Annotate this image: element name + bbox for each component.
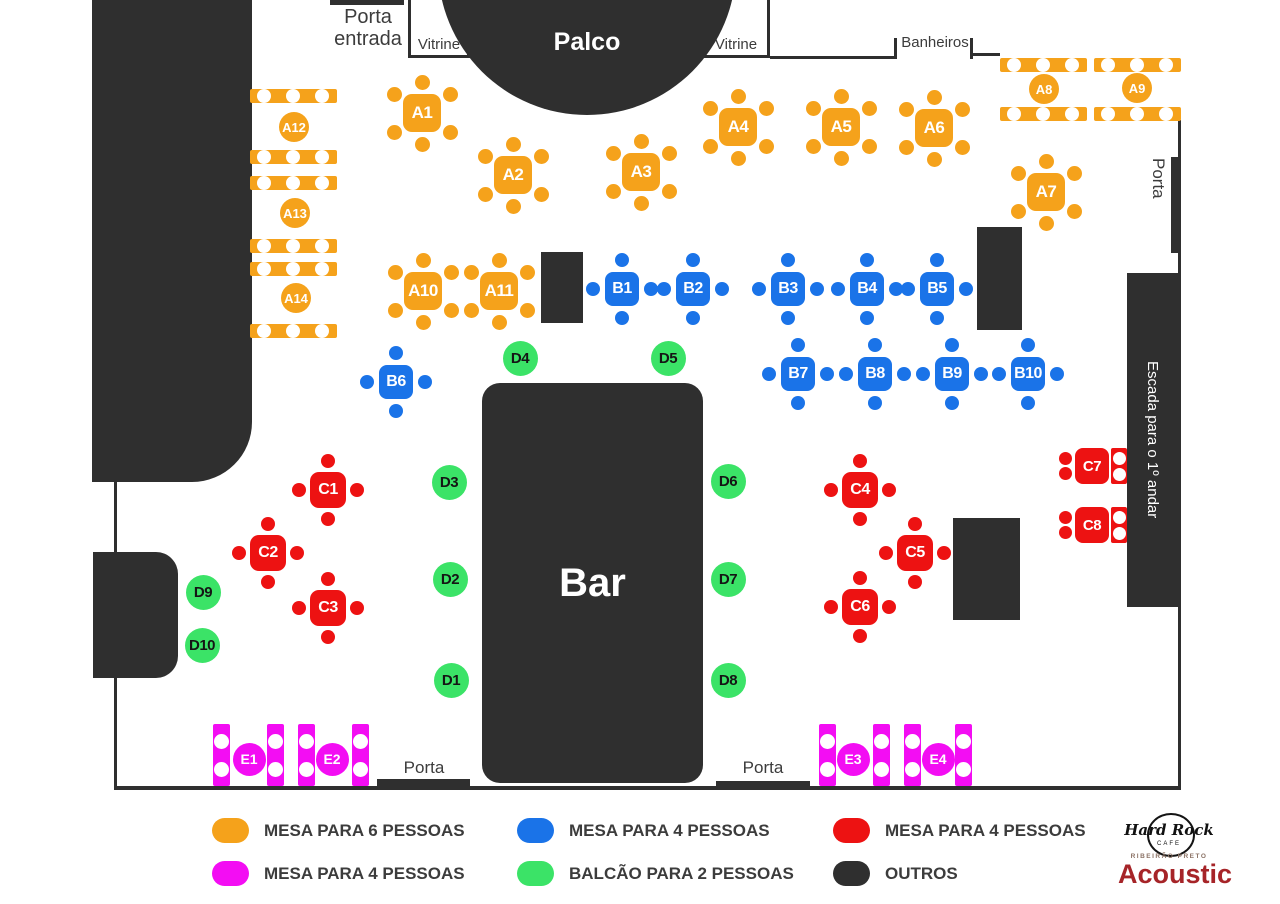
seat-dot — [762, 367, 776, 381]
seat-dot — [321, 512, 335, 526]
seat-dot — [901, 282, 915, 296]
seat-dot — [444, 303, 459, 318]
seat-dot — [360, 375, 374, 389]
seat-dot — [937, 546, 951, 560]
table-top: A11 — [480, 272, 518, 310]
seat-dot — [834, 151, 849, 166]
seat-dot — [268, 734, 283, 749]
seat-dot — [492, 315, 507, 330]
seat-dot — [644, 282, 658, 296]
seat-dot — [703, 139, 718, 154]
seat-dot — [820, 762, 835, 777]
seat-dot — [686, 311, 700, 325]
seat-dot — [321, 454, 335, 468]
seat-dot — [315, 262, 329, 276]
table-top: B4 — [850, 272, 884, 306]
seat-dot — [927, 90, 942, 105]
seat-dot — [860, 311, 874, 325]
seat-dot — [834, 89, 849, 104]
seat-dot — [520, 303, 535, 318]
counter-D5[interactable]: D5 — [651, 341, 686, 376]
seat-dot — [286, 239, 300, 253]
seat-dot — [1101, 58, 1115, 72]
wall-bottom — [114, 786, 1181, 790]
seat-dot — [905, 762, 920, 777]
seat-dot — [781, 253, 795, 267]
seat-dot — [824, 600, 838, 614]
bench — [1111, 507, 1127, 543]
seat-dot — [520, 265, 535, 280]
counter-D1[interactable]: D1 — [434, 663, 469, 698]
table-top: A2 — [494, 156, 532, 194]
bar-label: Bar — [559, 561, 626, 606]
seat-dot — [791, 396, 805, 410]
vitrine-right-label: Vitrine — [715, 36, 757, 53]
seat-dot — [860, 253, 874, 267]
seat-dot — [992, 367, 1006, 381]
bar-counter: Bar — [482, 383, 703, 783]
wall-top-left-block — [92, 0, 252, 482]
legend-swatch-magenta — [212, 861, 249, 886]
seat-dot — [1159, 107, 1173, 121]
seat-dot — [899, 140, 914, 155]
seat-dot — [853, 454, 867, 468]
seat-dot — [418, 375, 432, 389]
table-top: C8 — [1075, 507, 1109, 543]
door-bottom-right — [716, 781, 810, 788]
seat-dot — [257, 239, 271, 253]
seat-dot — [868, 396, 882, 410]
seat-dot — [945, 338, 959, 352]
table-label: A13 — [280, 198, 310, 228]
seat-dot — [315, 89, 329, 103]
seat-dot — [974, 367, 988, 381]
table-top: C6 — [842, 589, 878, 625]
bench — [267, 724, 284, 786]
wall-line-banheiros — [770, 56, 897, 59]
seat-dot — [752, 282, 766, 296]
legend-swatch-blue — [517, 818, 554, 843]
table-label: E4 — [922, 743, 955, 776]
bench — [819, 724, 836, 786]
table-label: E1 — [233, 743, 266, 776]
seat-dot — [1036, 58, 1050, 72]
seat-dot — [1011, 204, 1026, 219]
seat-dot — [315, 239, 329, 253]
hardrock-logo-cafe: CAFE — [1152, 841, 1186, 847]
seat-dot — [908, 517, 922, 531]
bench — [250, 324, 337, 338]
seat-dot — [897, 367, 911, 381]
seat-dot — [1130, 58, 1144, 72]
seat-dot — [839, 367, 853, 381]
seat-dot — [1113, 452, 1126, 465]
porta-bottom-right-label: Porta — [713, 758, 813, 778]
seat-dot — [916, 367, 930, 381]
seat-dot — [214, 762, 229, 777]
table-top: A4 — [719, 108, 757, 146]
seat-dot — [1101, 107, 1115, 121]
seat-dot — [292, 601, 306, 615]
seat-dot — [388, 265, 403, 280]
seat-dot — [299, 762, 314, 777]
seat-dot — [853, 571, 867, 585]
seat-dot — [443, 87, 458, 102]
table-top: B7 — [781, 357, 815, 391]
legend-label: BALCÃO PARA 2 PESSOAS — [569, 861, 794, 886]
seat-dot — [806, 101, 821, 116]
stairs-label: Escada para o 1º andar — [1144, 361, 1161, 518]
seat-dot — [759, 101, 774, 116]
seat-dot — [905, 734, 920, 749]
seat-dot — [387, 87, 402, 102]
seat-dot — [257, 262, 271, 276]
seat-dot — [1065, 107, 1079, 121]
seat-dot — [759, 139, 774, 154]
seat-dot — [286, 262, 300, 276]
seat-dot — [1007, 58, 1021, 72]
legend-swatch-red — [833, 818, 870, 843]
counter-D9[interactable]: D9 — [186, 575, 221, 610]
seat-dot — [506, 137, 521, 152]
table-label: A8 — [1029, 74, 1059, 104]
bench — [1094, 58, 1181, 72]
hardrock-logo-location: RIBEIRÃO PRETO — [1124, 853, 1214, 860]
bench — [1000, 107, 1087, 121]
seat-dot — [257, 150, 271, 164]
seat-dot — [882, 483, 896, 497]
table-top: B1 — [605, 272, 639, 306]
counter-D2[interactable]: D2 — [433, 562, 468, 597]
seat-dot — [874, 734, 889, 749]
seat-dot — [290, 546, 304, 560]
table-top: B2 — [676, 272, 710, 306]
seat-dot — [299, 734, 314, 749]
stage — [438, 0, 736, 115]
table-label: A12 — [279, 112, 309, 142]
seat-dot — [286, 324, 300, 338]
stage-label: Palco — [537, 28, 637, 57]
counter-D4[interactable]: D4 — [503, 341, 538, 376]
table-label: E3 — [837, 743, 870, 776]
table-top: A10 — [404, 272, 442, 310]
seat-dot — [1113, 527, 1126, 540]
seat-dot — [634, 134, 649, 149]
bench — [955, 724, 972, 786]
seat-dot — [824, 483, 838, 497]
hardrock-logo-event: Acoustic — [1118, 859, 1222, 890]
seat-dot — [731, 89, 746, 104]
table-top: A3 — [622, 153, 660, 191]
door-right — [1171, 157, 1180, 253]
seat-dot — [882, 600, 896, 614]
seat-dot — [292, 483, 306, 497]
seat-dot — [415, 75, 430, 90]
banheiros-label: Banheiros — [899, 34, 971, 51]
seat-dot — [268, 762, 283, 777]
seat-dot — [478, 149, 493, 164]
seat-dot — [862, 101, 877, 116]
wall-tick-left — [894, 38, 897, 59]
seat-dot — [927, 152, 942, 167]
seat-dot — [1036, 107, 1050, 121]
seat-dot — [257, 89, 271, 103]
seat-dot — [853, 629, 867, 643]
seat-dot — [703, 101, 718, 116]
bench — [250, 176, 337, 190]
floor-plan: Porta entrada Vitrine Vitrine Palco Banh… — [0, 0, 1280, 904]
seat-dot — [1011, 166, 1026, 181]
legend-label: MESA PARA 4 PESSOAS — [569, 818, 770, 843]
bench — [1094, 107, 1181, 121]
seat-dot — [791, 338, 805, 352]
seat-dot — [464, 265, 479, 280]
seat-dot — [257, 176, 271, 190]
seat-dot — [853, 512, 867, 526]
seat-dot — [286, 176, 300, 190]
hardrock-logo-circle — [1147, 813, 1195, 857]
seat-dot — [353, 734, 368, 749]
bench — [250, 262, 337, 276]
seat-dot — [908, 575, 922, 589]
bench — [1000, 58, 1087, 72]
table-top: B8 — [858, 357, 892, 391]
seat-dot — [879, 546, 893, 560]
seat-dot — [443, 125, 458, 140]
seat-dot — [1021, 396, 1035, 410]
seat-dot — [214, 734, 229, 749]
table-top: B5 — [920, 272, 954, 306]
table-top: C3 — [310, 590, 346, 626]
seat-dot — [606, 184, 621, 199]
seat-dot — [930, 311, 944, 325]
seat-dot — [868, 338, 882, 352]
seat-dot — [899, 102, 914, 117]
porta-entrada-line2: entrada — [334, 28, 402, 50]
seat-dot — [615, 311, 629, 325]
bench — [1111, 448, 1127, 484]
seat-dot — [862, 139, 877, 154]
seat-dot — [831, 282, 845, 296]
seat-dot — [806, 139, 821, 154]
seat-dot — [353, 762, 368, 777]
table-top: B6 — [379, 365, 413, 399]
table-top: C7 — [1075, 448, 1109, 484]
seat-dot — [286, 150, 300, 164]
seat-dot — [492, 253, 507, 268]
table-top: B3 — [771, 272, 805, 306]
seat-dot — [478, 187, 493, 202]
seat-dot — [350, 483, 364, 497]
seat-dot — [586, 282, 600, 296]
seat-dot — [956, 734, 971, 749]
counter-D3[interactable]: D3 — [432, 465, 467, 500]
table-top: A7 — [1027, 173, 1065, 211]
seat-dot — [232, 546, 246, 560]
wall-entry-bar — [330, 0, 404, 5]
seat-dot — [1021, 338, 1035, 352]
seat-dot — [820, 734, 835, 749]
table-top: C5 — [897, 535, 933, 571]
seat-dot — [506, 199, 521, 214]
seat-dot — [464, 303, 479, 318]
seat-dot — [1007, 107, 1021, 121]
seat-dot — [286, 89, 300, 103]
legend-swatch-orange — [212, 818, 249, 843]
seat-dot — [1039, 216, 1054, 231]
table-top: A1 — [403, 94, 441, 132]
seat-dot — [534, 187, 549, 202]
seat-dot — [945, 396, 959, 410]
seat-dot — [615, 253, 629, 267]
seat-dot — [388, 303, 403, 318]
seat-dot — [1113, 511, 1126, 524]
seat-dot — [657, 282, 671, 296]
porta-right-label: Porta — [1148, 158, 1168, 254]
seat-dot — [956, 762, 971, 777]
table-label: A9 — [1122, 73, 1152, 103]
seat-dot — [315, 176, 329, 190]
seat-dot — [662, 184, 677, 199]
bench — [250, 239, 337, 253]
legend-label: OUTROS — [885, 861, 958, 886]
legend-label: MESA PARA 4 PESSOAS — [885, 818, 1086, 843]
seat-dot — [416, 253, 431, 268]
seat-dot — [321, 630, 335, 644]
seat-dot — [387, 125, 402, 140]
seat-dot — [955, 102, 970, 117]
table-top: B10 — [1011, 357, 1045, 391]
seat-dot — [1130, 107, 1144, 121]
seat-dot — [261, 517, 275, 531]
bench — [904, 724, 921, 786]
porta-bottom-left-label: Porta — [374, 758, 474, 778]
seat-dot — [1159, 58, 1173, 72]
seat-dot — [606, 146, 621, 161]
seat-dot — [1059, 452, 1072, 465]
legend-label: MESA PARA 4 PESSOAS — [264, 861, 465, 886]
seat-dot — [634, 196, 649, 211]
table-label: E2 — [316, 743, 349, 776]
counter-D6[interactable]: D6 — [711, 464, 746, 499]
seat-dot — [731, 151, 746, 166]
pillar-bottom — [953, 518, 1020, 620]
bench — [213, 724, 230, 786]
seat-dot — [1067, 204, 1082, 219]
seat-dot — [315, 150, 329, 164]
seat-dot — [1059, 511, 1072, 524]
pillar-top — [541, 252, 583, 323]
counter-D10[interactable]: D10 — [185, 628, 220, 663]
seat-dot — [874, 762, 889, 777]
hardrock-logo-name: Hard Rock — [1124, 821, 1214, 839]
bench — [250, 150, 337, 164]
seat-dot — [662, 146, 677, 161]
vitrine-left-label: Vitrine — [418, 36, 460, 53]
seat-dot — [781, 311, 795, 325]
seat-dot — [959, 282, 973, 296]
table-top: A6 — [915, 109, 953, 147]
table-top: C1 — [310, 472, 346, 508]
seat-dot — [1059, 526, 1072, 539]
bench — [873, 724, 890, 786]
wall-left-block — [93, 552, 178, 678]
table-top: A5 — [822, 108, 860, 146]
seat-dot — [930, 253, 944, 267]
table-top: B9 — [935, 357, 969, 391]
counter-D8[interactable]: D8 — [711, 663, 746, 698]
wall-step — [970, 53, 1000, 56]
seat-dot — [1059, 467, 1072, 480]
door-bottom-left — [377, 779, 470, 787]
counter-D7[interactable]: D7 — [711, 562, 746, 597]
porta-entrada-line1: Porta — [344, 6, 392, 28]
legend-swatch-green — [517, 861, 554, 886]
seat-dot — [415, 137, 430, 152]
pillar-right — [977, 227, 1022, 330]
seat-dot — [257, 324, 271, 338]
bench — [352, 724, 369, 786]
bench — [298, 724, 315, 786]
seat-dot — [1065, 58, 1079, 72]
seat-dot — [715, 282, 729, 296]
seat-dot — [350, 601, 364, 615]
stairs-block: Escada para o 1º andar — [1127, 273, 1178, 607]
seat-dot — [321, 572, 335, 586]
seat-dot — [1039, 154, 1054, 169]
seat-dot — [1050, 367, 1064, 381]
legend-label: MESA PARA 6 PESSOAS — [264, 818, 465, 843]
seat-dot — [534, 149, 549, 164]
bench — [250, 89, 337, 103]
seat-dot — [686, 253, 700, 267]
seat-dot — [1113, 468, 1126, 481]
seat-dot — [389, 346, 403, 360]
table-label: A14 — [281, 283, 311, 313]
seat-dot — [955, 140, 970, 155]
seat-dot — [820, 367, 834, 381]
table-top: C4 — [842, 472, 878, 508]
seat-dot — [444, 265, 459, 280]
table-top: C2 — [250, 535, 286, 571]
seat-dot — [1067, 166, 1082, 181]
seat-dot — [315, 324, 329, 338]
legend-swatch-black — [833, 861, 870, 886]
seat-dot — [810, 282, 824, 296]
seat-dot — [261, 575, 275, 589]
seat-dot — [416, 315, 431, 330]
seat-dot — [389, 404, 403, 418]
